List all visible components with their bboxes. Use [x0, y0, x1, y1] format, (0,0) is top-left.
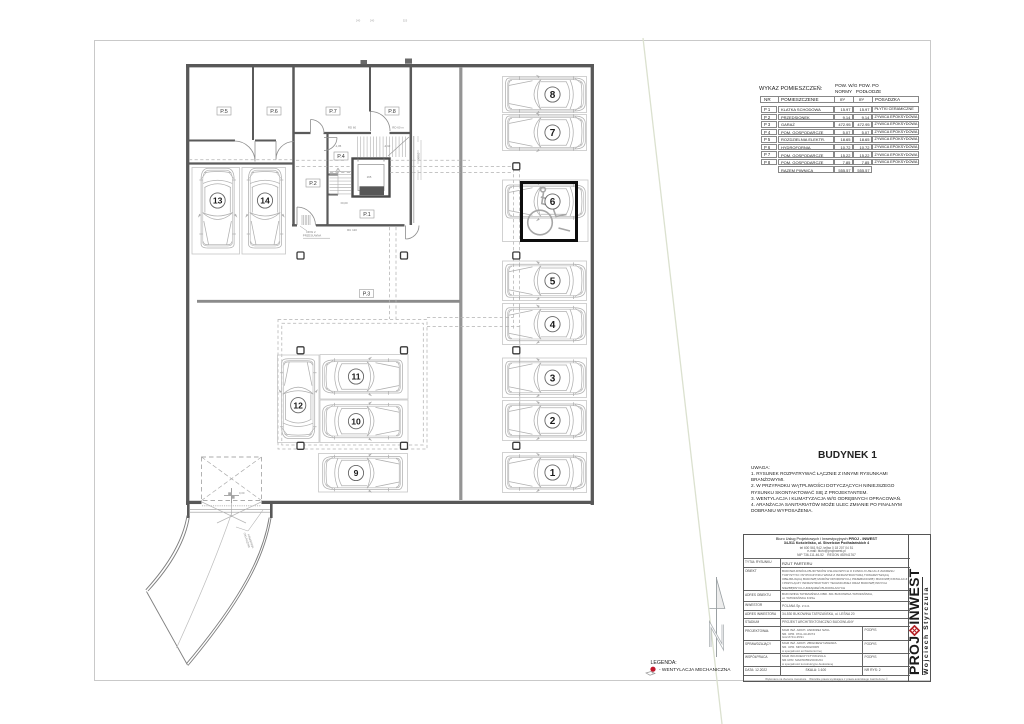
svg-text:2: 2	[550, 416, 556, 427]
svg-text:9: 9	[354, 468, 359, 478]
svg-text:P.5: P.5	[220, 109, 227, 115]
svg-text:1: 1	[550, 468, 556, 479]
svg-text:P.6: P.6	[270, 109, 277, 115]
svg-text:P.4: P.4	[337, 154, 344, 160]
svg-text:13: 13	[213, 196, 223, 206]
svg-text:240: 240	[370, 19, 375, 23]
svg-text:0,00: 0,00	[239, 491, 245, 495]
svg-text:4: 4	[550, 320, 556, 331]
svg-text:240: 240	[356, 19, 361, 23]
svg-text:P.1: P.1	[363, 212, 370, 218]
svg-text:P.8: P.8	[388, 109, 395, 115]
svg-text:-2,10: -2,10	[384, 144, 391, 148]
svg-text:3: 3	[550, 373, 556, 384]
svg-text:-1,05: -1,05	[335, 144, 342, 148]
svg-text:10: 10	[351, 416, 361, 426]
svg-text:8: 8	[550, 90, 556, 101]
svg-text:11: 11	[351, 372, 360, 382]
svg-text:12: 12	[293, 400, 303, 410]
svg-text:P.2: P.2	[309, 181, 316, 187]
svg-text:5: 5	[550, 276, 556, 287]
svg-text:165: 165	[367, 175, 372, 179]
svg-text:RU 120: RU 120	[347, 228, 357, 232]
svg-text:14: 14	[260, 196, 270, 206]
svg-text:P.7: P.7	[329, 109, 336, 115]
svg-text:6: 6	[550, 197, 556, 208]
svg-text:RD 60: RD 60	[348, 126, 357, 130]
svg-text:7: 7	[550, 128, 556, 139]
svg-text:RD 60 m: RD 60 m	[392, 126, 404, 130]
svg-text:±0,00: ±0,00	[340, 201, 348, 205]
svg-text:525: 525	[403, 19, 408, 23]
svg-text:P.3: P.3	[363, 291, 370, 297]
svg-text:PRZESUWNA: PRZESUWNA	[303, 234, 322, 238]
svg-text:360,0: 360,0	[417, 152, 421, 160]
